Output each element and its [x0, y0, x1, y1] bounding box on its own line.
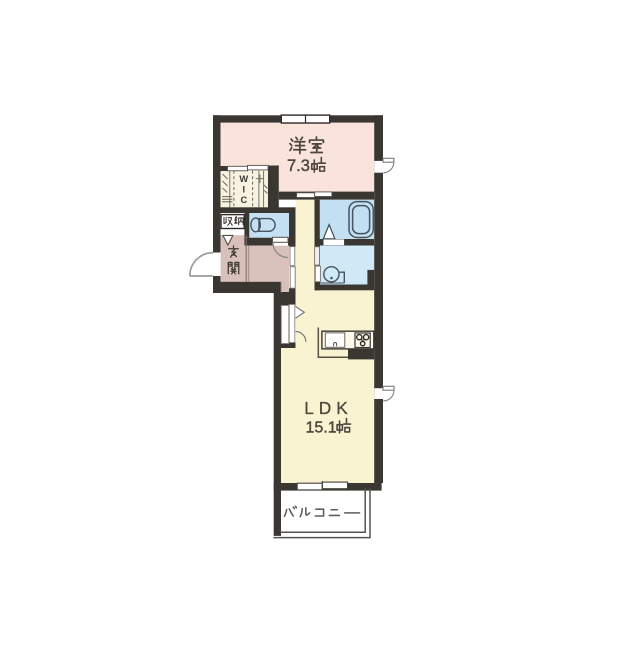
svg-text:15.1: 15.1 — [306, 419, 337, 436]
svg-text:LDK: LDK — [304, 398, 353, 418]
svg-text:W: W — [239, 174, 248, 184]
svg-text:C: C — [240, 195, 247, 205]
svg-text:7.3: 7.3 — [287, 157, 310, 175]
svg-text:I: I — [243, 184, 246, 194]
